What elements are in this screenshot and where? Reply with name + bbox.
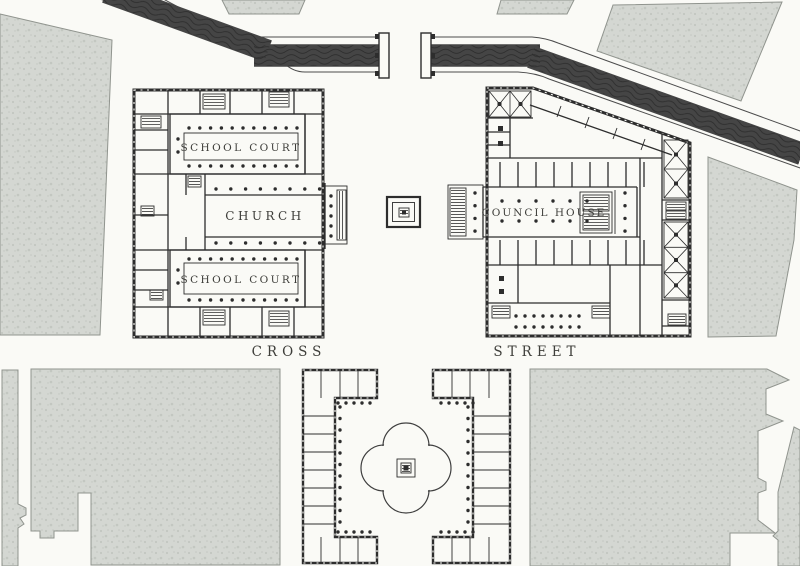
church-label: CHURCH xyxy=(225,209,304,223)
plan-canvas: SCHOOL COURT CHURCH SCHOOL COURT xyxy=(0,0,800,566)
school-court-top-label: SCHOOL COURT xyxy=(181,142,302,154)
town-plan: SCHOOL COURT CHURCH SCHOOL COURT xyxy=(0,0,800,566)
block-top-strip-b xyxy=(497,0,574,14)
street-label-cross: CROSS xyxy=(252,344,327,360)
street-label-street: STREET xyxy=(493,344,580,360)
council-house-label: COUNCIL HOUSE xyxy=(482,207,607,219)
canal-lock-gate xyxy=(379,33,389,78)
block-top-left xyxy=(0,14,112,335)
canal-lock-gate xyxy=(421,33,431,78)
school-court-bottom-label: SCHOOL COURT xyxy=(181,274,302,286)
block-top-strip-a xyxy=(222,0,305,14)
